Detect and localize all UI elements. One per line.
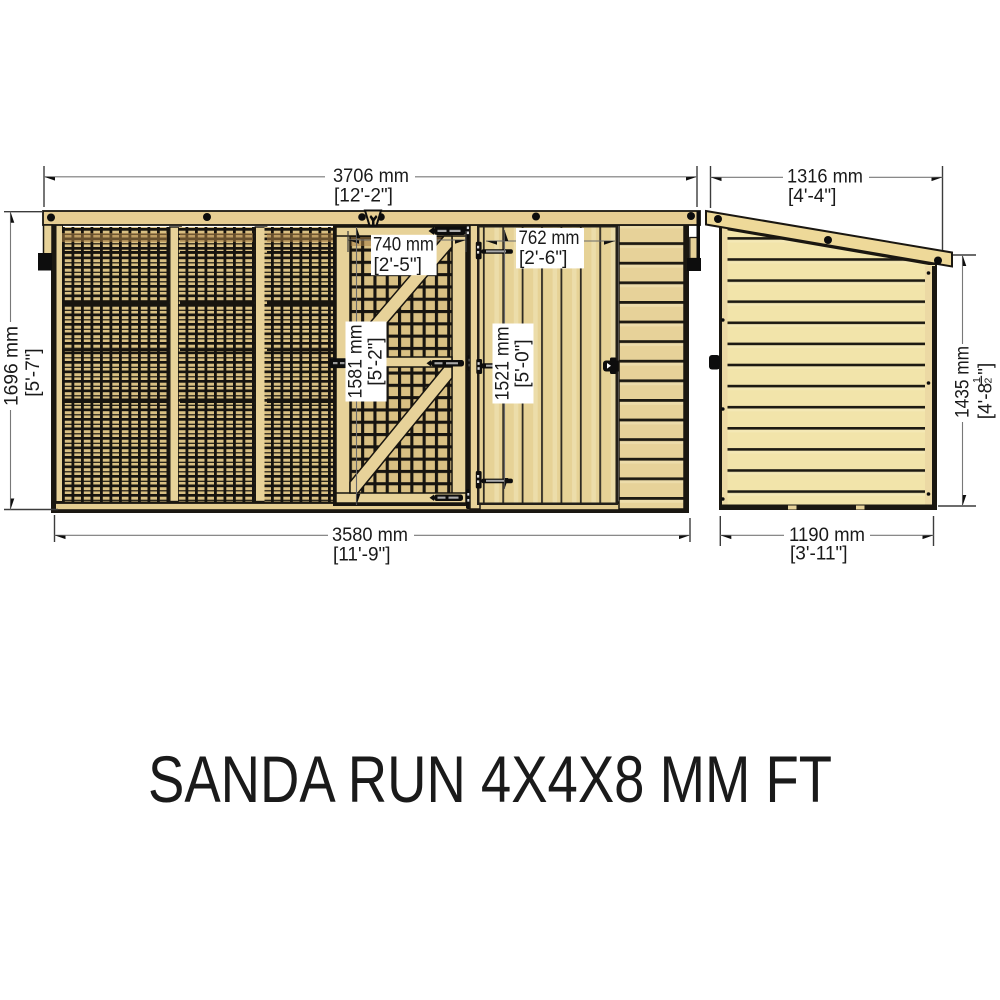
svg-text:[5'-0"]: [5'-0"] (513, 339, 534, 387)
svg-text:1581 mm: 1581 mm (346, 325, 367, 399)
svg-text:[2'-6"]: [2'-6"] (519, 248, 567, 269)
svg-text:[2'-5"]: [2'-5"] (374, 255, 422, 276)
svg-text:[5'-7"]: [5'-7"] (23, 348, 44, 396)
svg-text:[5'-2"]: [5'-2"] (366, 337, 387, 385)
svg-text:"]: "] (976, 363, 997, 375)
svg-text:[11'-9"]: [11'-9"] (333, 545, 391, 566)
svg-text:3580 mm: 3580 mm (332, 525, 408, 546)
svg-text:[3'-11"]: [3'-11"] (790, 544, 848, 565)
svg-text:[4'-4"]: [4'-4"] (788, 186, 836, 207)
svg-text:3706 mm: 3706 mm (333, 166, 409, 187)
svg-text:1316 mm: 1316 mm (787, 167, 863, 188)
svg-text:[12'-2"]: [12'-2"] (334, 186, 393, 207)
svg-text:762 mm: 762 mm (519, 228, 580, 249)
svg-text:1521 mm: 1521 mm (493, 327, 514, 401)
svg-text:1696 mm: 1696 mm (2, 326, 23, 406)
svg-text:SANDA RUN 4X4X8 MM FT: SANDA RUN 4X4X8 MM FT (148, 743, 832, 816)
svg-text:740 mm: 740 mm (373, 235, 434, 256)
svg-text:[4'-8: [4'-8 (976, 383, 997, 419)
svg-text:2: 2 (982, 378, 994, 384)
